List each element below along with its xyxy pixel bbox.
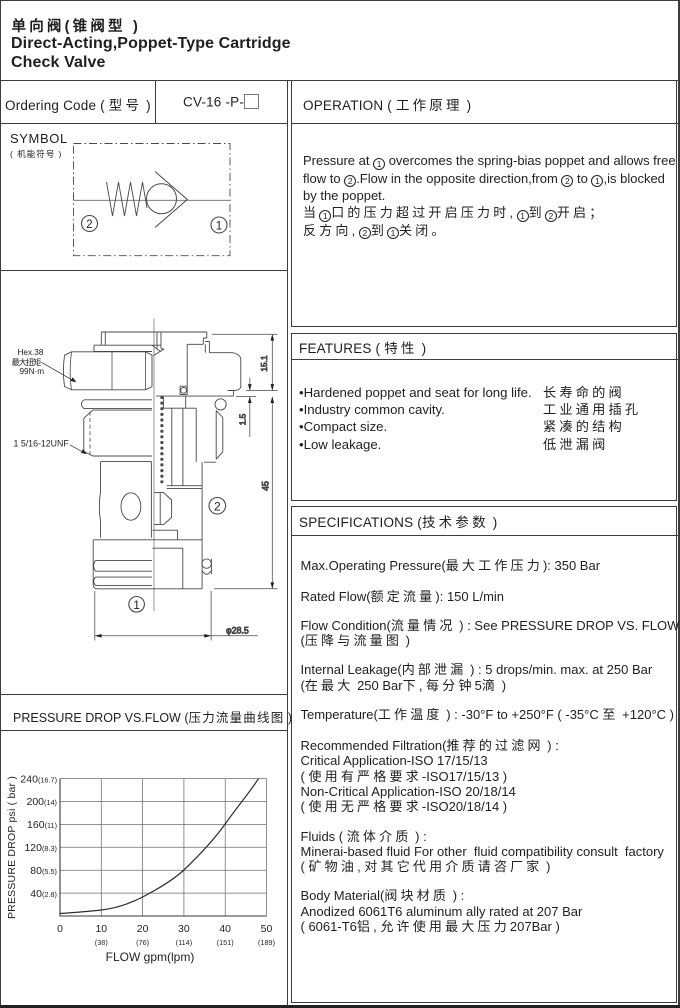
svg-text:30: 30 xyxy=(178,923,190,935)
svg-text:(189): (189) xyxy=(258,938,275,947)
svg-text:15.1: 15.1 xyxy=(259,355,269,372)
svg-text:40(2.8): 40(2.8) xyxy=(30,888,57,900)
svg-text:(151): (151) xyxy=(217,938,234,947)
svg-text:1 5/16-12UNF: 1 5/16-12UNF xyxy=(14,439,70,449)
svg-text:50: 50 xyxy=(261,923,273,935)
svg-text:120(8.3): 120(8.3) xyxy=(24,842,57,854)
svg-text:20: 20 xyxy=(137,923,149,935)
svg-text:FLOW gpm(lpm): FLOW gpm(lpm) xyxy=(106,950,195,964)
svg-text:最大扭矩: 最大扭矩 xyxy=(12,357,42,367)
svg-text:1: 1 xyxy=(133,598,140,612)
svg-text:99N·m: 99N·m xyxy=(20,367,45,376)
svg-text:1: 1 xyxy=(216,221,222,233)
svg-text:160(11): 160(11) xyxy=(27,819,57,831)
svg-text:2: 2 xyxy=(214,499,221,513)
svg-text:1.5: 1.5 xyxy=(237,413,247,425)
svg-text:240(16.7): 240(16.7) xyxy=(20,773,57,785)
svg-text:0: 0 xyxy=(57,923,63,935)
svg-text:2: 2 xyxy=(86,219,92,231)
svg-text:40: 40 xyxy=(219,923,231,935)
svg-text:10: 10 xyxy=(95,923,107,935)
svg-text:(38): (38) xyxy=(95,938,108,947)
svg-text:(114): (114) xyxy=(176,938,193,947)
svg-text:PRESSURE DROP psi ( bar ): PRESSURE DROP psi ( bar ) xyxy=(6,776,18,919)
svg-text:Hex.38: Hex.38 xyxy=(18,348,44,357)
svg-text:45: 45 xyxy=(261,481,271,491)
svg-text:(76): (76) xyxy=(136,938,149,947)
svg-text:80(5.5): 80(5.5) xyxy=(30,865,57,877)
svg-text:200(14): 200(14) xyxy=(26,796,57,808)
svg-text:φ28.5: φ28.5 xyxy=(226,626,249,636)
